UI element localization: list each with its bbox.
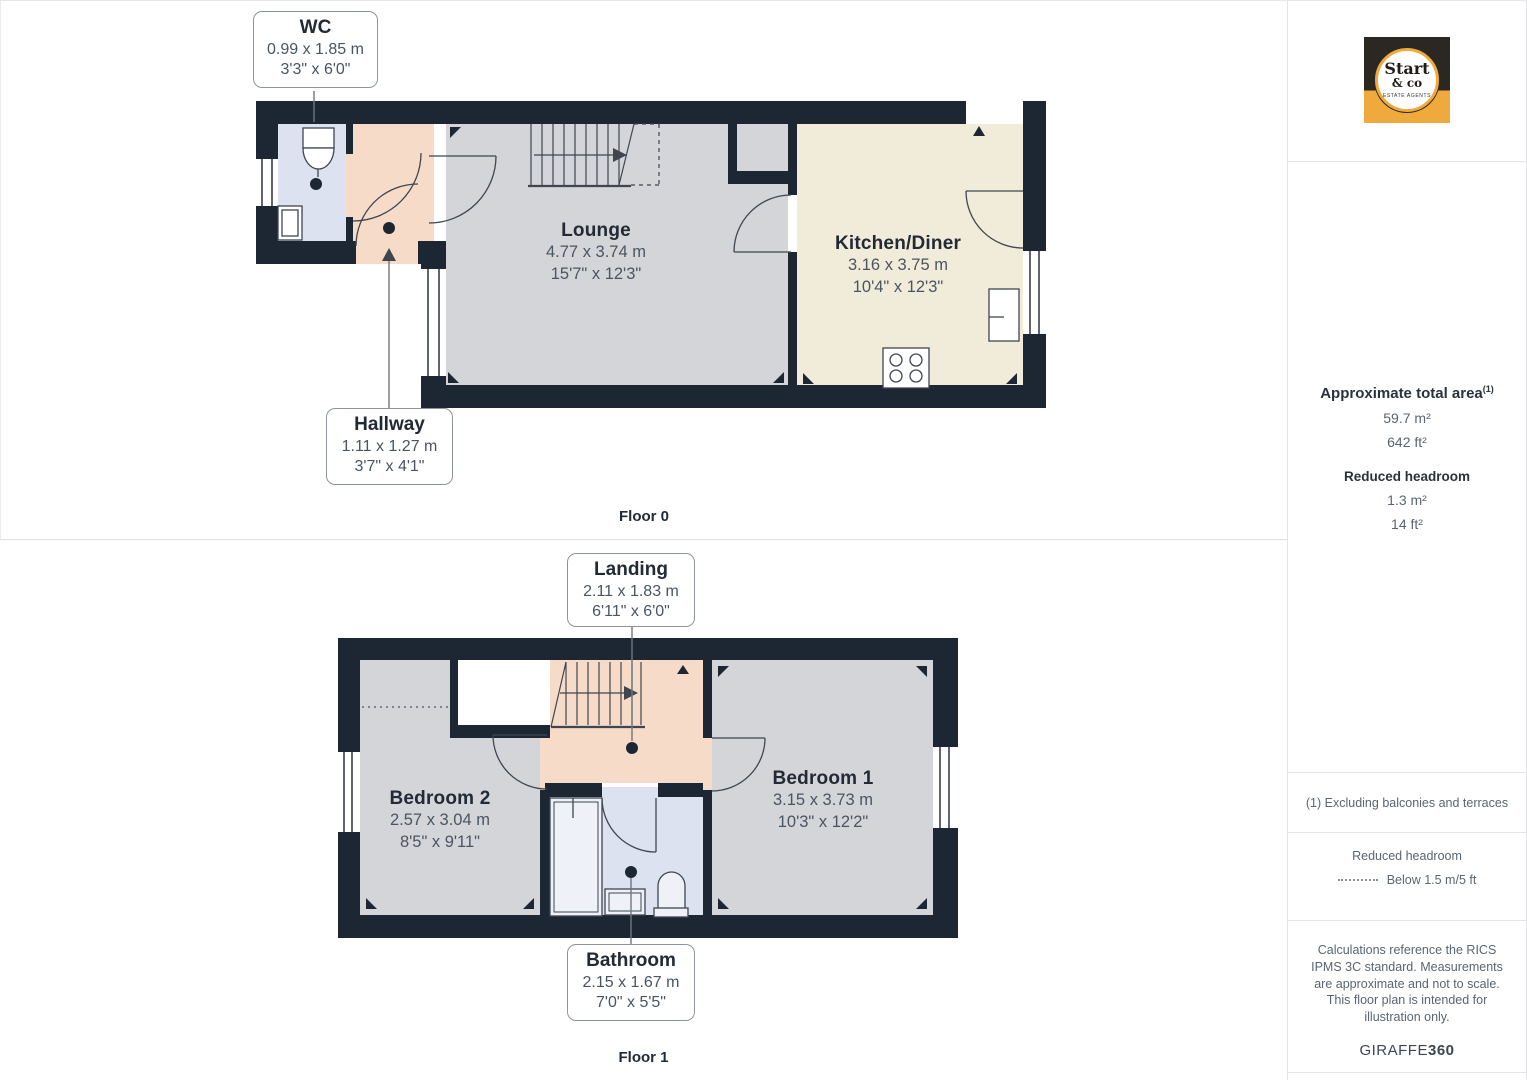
callout-imperial: 6'11" x 6'0"	[568, 602, 694, 622]
callout-imperial: 7'0" x 5'5"	[568, 993, 694, 1013]
reduced-headroom-m2: 1.3 m²	[1288, 492, 1526, 508]
callout-metric: 0.99 x 1.85 m	[254, 40, 377, 60]
room-imperial: 8'5" x 9'11"	[340, 832, 540, 854]
reduced-headroom-title: Reduced headroom	[1288, 469, 1526, 484]
floor0-label: Floor 0	[1, 508, 1287, 525]
giraffe360-brand: GIRAFFE360	[1288, 1042, 1526, 1059]
agency-logo-name2: & co	[1392, 77, 1422, 90]
disclaimer-text: Calculations reference the RICS IPMS 3C …	[1308, 942, 1506, 1026]
callout-metric: 2.15 x 1.67 m	[568, 973, 694, 993]
total-area-title-text: Approximate total area	[1320, 385, 1483, 402]
room-imperial: 10'4" x 12'3"	[798, 277, 998, 299]
callout-landing: Landing 2.11 x 1.83 m 6'11" x 6'0"	[567, 553, 695, 627]
floorplan-page: WC 0.99 x 1.85 m 3'3" x 6'0" Hallway 1.1…	[0, 0, 1527, 1080]
room-label-lounge: Lounge 4.77 x 3.74 m 15'7" x 12'3"	[496, 220, 696, 286]
area-footnote-text: (1) Excluding balconies and terraces	[1306, 796, 1508, 810]
floor0-panel: WC 0.99 x 1.85 m 3'3" x 6'0" Hallway 1.1…	[0, 1, 1287, 540]
callout-bathroom: Bathroom 2.15 x 1.67 m 7'0" x 5'5"	[567, 944, 695, 1021]
room-name: Bedroom 2	[340, 788, 540, 810]
brand-name: GIRAFFE	[1359, 1042, 1428, 1059]
room-metric: 3.16 x 3.75 m	[798, 255, 998, 277]
room-name: Kitchen/Diner	[798, 233, 998, 255]
reduced-headroom-ft2: 14 ft²	[1288, 516, 1526, 532]
room-name: Bedroom 1	[723, 768, 923, 790]
area-footnote: (1) Excluding balconies and terraces	[1288, 773, 1526, 833]
callout-metric: 2.11 x 1.83 m	[568, 582, 694, 602]
callout-imperial: 3'3" x 6'0"	[254, 60, 377, 80]
callout-imperial: 3'7" x 4'1"	[327, 457, 452, 477]
agency-logo-circle: Start & co ESTATE AGENTS	[1375, 48, 1439, 112]
callout-title: WC	[254, 17, 377, 40]
floorplan-main: WC 0.99 x 1.85 m 3'3" x 6'0" Hallway 1.1…	[0, 1, 1287, 1080]
callout-hallway: Hallway 1.11 x 1.27 m 3'7" x 4'1"	[326, 408, 453, 485]
total-area-m2: 59.7 m²	[1288, 410, 1526, 426]
brand-suffix: 360	[1428, 1042, 1455, 1059]
floor1-label: Floor 1	[0, 1049, 1287, 1066]
legend-item-label: Below 1.5 m/5 ft	[1387, 873, 1477, 887]
callout-metric: 1.11 x 1.27 m	[327, 437, 452, 457]
callout-title: Landing	[568, 559, 694, 582]
room-label-bedroom-1: Bedroom 1 3.15 x 3.73 m 10'3" x 12'2"	[723, 768, 923, 834]
room-metric: 2.57 x 3.04 m	[340, 810, 540, 832]
room-metric: 3.15 x 3.73 m	[723, 790, 923, 812]
room-metric: 4.77 x 3.74 m	[496, 242, 696, 264]
legend-row: Below 1.5 m/5 ft	[1288, 873, 1526, 887]
reduced-headroom-dash-icon	[1338, 879, 1378, 881]
callout-title: Bathroom	[568, 950, 694, 973]
info-sidebar: Start & co ESTATE AGENTS Approximate tot…	[1287, 1, 1527, 1080]
callout-title: Hallway	[327, 414, 452, 437]
disclaimer-section: Calculations reference the RICS IPMS 3C …	[1288, 921, 1526, 1073]
agency-logo-name: Start	[1384, 61, 1429, 77]
callout-wc: WC 0.99 x 1.85 m 3'3" x 6'0"	[253, 11, 378, 88]
total-area-title: Approximate total area(1)	[1288, 384, 1526, 402]
room-name: Lounge	[496, 220, 696, 242]
agency-logo-tagline: ESTATE AGENTS	[1383, 93, 1431, 99]
agency-logo: Start & co ESTATE AGENTS	[1364, 37, 1450, 123]
footnote-marker: (1)	[1483, 384, 1494, 394]
legend-section: Reduced headroom Below 1.5 m/5 ft	[1288, 833, 1526, 921]
room-label-bedroom-2: Bedroom 2 2.57 x 3.04 m 8'5" x 9'11"	[340, 788, 540, 854]
floor1-panel: Landing 2.11 x 1.83 m 6'11" x 6'0" Bathr…	[0, 540, 1287, 1080]
room-imperial: 15'7" x 12'3"	[496, 264, 696, 286]
agency-logo-section: Start & co ESTATE AGENTS	[1288, 1, 1526, 162]
room-imperial: 10'3" x 12'2"	[723, 812, 923, 834]
area-summary-section: Approximate total area(1) 59.7 m² 642 ft…	[1288, 162, 1526, 773]
room-label-kitchen-diner: Kitchen/Diner 3.16 x 3.75 m 10'4" x 12'3…	[798, 233, 998, 299]
legend-title: Reduced headroom	[1288, 849, 1526, 863]
total-area-ft2: 642 ft²	[1288, 434, 1526, 450]
